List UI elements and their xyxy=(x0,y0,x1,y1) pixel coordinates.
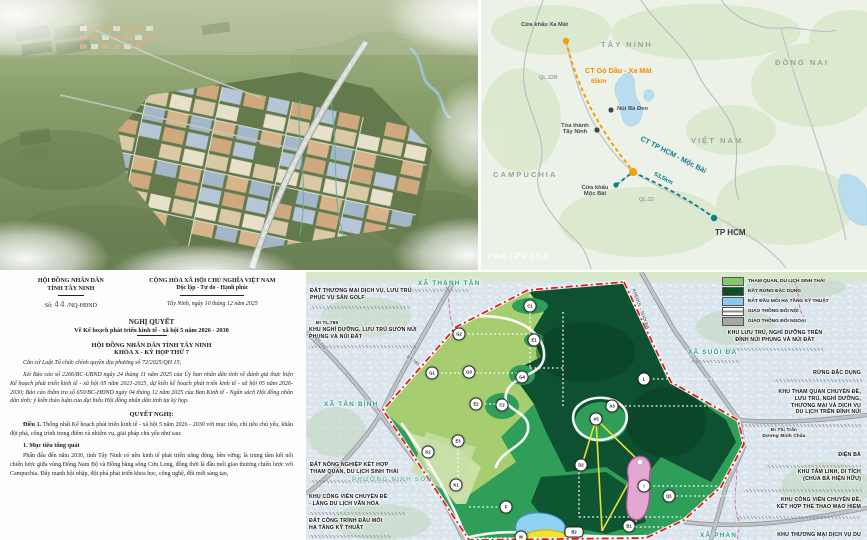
label-di-tl785: ĐI TL.785 xyxy=(316,320,338,326)
legend-item: ĐẤT RỪNG ĐẶC DỤNG xyxy=(722,287,801,296)
label-hatch xyxy=(310,306,410,309)
zone-marker: E1 xyxy=(528,334,541,347)
label-cua-khau-xa-mat: Cửa khẩu Xa Mát xyxy=(521,22,568,28)
cable-station-dot xyxy=(637,459,643,465)
label-phuong-ninh-son: PHƯỜNG NINH SƠN xyxy=(352,476,433,483)
zone-marker: A5 xyxy=(590,413,603,426)
zone-marker: A3 xyxy=(606,400,619,413)
label-toa-thanh-tay-ninh: Tòa thành Tây Ninh xyxy=(555,123,595,135)
document-title: NGHỊ QUYẾT xyxy=(10,318,293,326)
zone-marker: Q1 xyxy=(663,490,676,503)
session-line: KHÓA X - KỲ HỌP THỨ 7 xyxy=(10,349,293,356)
label-khu-luu-tru-dinh-nui: KHU LƯU TRÚ, NGHỈ DƯỠNG TRÊN ĐỈNH NÚI PH… xyxy=(724,330,826,344)
legend-item: ĐẤT ĐẦU MỐI HẠ TẦNG KỸ THUẬT xyxy=(722,297,829,306)
report-paragraph: Xét Báo cáo số 2266/BC-UBND ngày 24 thán… xyxy=(10,371,293,406)
label-hatch xyxy=(774,379,862,382)
document-panel: HỘI ĐỒNG NHÂN DÂN TỈNH TÂY NINH Số: 44 /… xyxy=(0,272,303,540)
label-hatch xyxy=(309,512,406,515)
resolve-heading: QUYẾT NGHỊ: xyxy=(10,411,293,418)
label-nui-ba-den: Núi Bà Đen xyxy=(617,106,648,112)
issuing-org-line1: HỘI ĐỒNG NHÂN DÂN xyxy=(10,277,132,285)
section-1-paragraph: Phấn đấu đến năm 2030, tỉnh Tây Ninh có … xyxy=(10,452,293,478)
zone-marker: G2 xyxy=(453,328,466,341)
zoning-map-panel: ĐẤT THƯƠNG MẠI DỊCH VỤ, LƯU TRÚ PHỤC VỤ … xyxy=(306,272,867,540)
zone-marker: I xyxy=(638,480,651,493)
label-dat-thuong-mai-san-golf: ĐẤT THƯƠNG MẠI DỊCH VỤ, LƯU TRÚ PHỤC VỤ … xyxy=(310,288,412,302)
legend-item: GIAO THÔNG ĐỐI NỘI xyxy=(722,307,799,316)
zone-marker: B1 xyxy=(623,520,636,533)
aerial-render xyxy=(0,0,478,270)
title-underline xyxy=(137,335,167,336)
dot-toa-thanh xyxy=(594,127,599,132)
label-di-thi-tran-duong-minh-chau: Đi Thị Trấn Dương Minh Châu xyxy=(754,427,814,439)
label-tp-hcm: TP HCM xyxy=(715,228,746,237)
document-number: Số: 44 /NQ-HĐND xyxy=(10,300,132,309)
legend-swatch xyxy=(722,307,744,316)
legend-label: ĐẤT ĐẦU MỐI HẠ TẦNG KỸ THUẬT xyxy=(748,299,829,304)
zone-marker: D2 xyxy=(575,459,588,472)
label-campuchia: CAMPUCHIA xyxy=(493,170,557,179)
legend-item: GIAO THÔNG ĐỐI NGOẠI xyxy=(722,317,806,326)
zone-marker: L xyxy=(638,373,651,386)
zone-marker: G4 xyxy=(516,371,529,384)
zone-marker: C1 xyxy=(524,300,537,313)
zone-marker: G3 xyxy=(463,366,476,379)
number-suffix: /NQ-HĐND xyxy=(67,303,97,309)
label-dien-ba: ĐIỆN BÀ xyxy=(821,452,861,459)
zone-marker: M xyxy=(515,531,528,540)
legal-basis: Căn cứ Luật Tổ chức chính quyền địa phươ… xyxy=(10,359,293,368)
legend-item: THAM QUAN, DU LỊCH SINH THÁI xyxy=(722,277,825,286)
label-ct-go-dau-xa-mat: CT Gò Dầu - Xa Mát xyxy=(585,66,652,75)
route-map-panel: Cửa khẩu Xa MátTÂY NINHĐỒNG NAICT Gò Dầu… xyxy=(481,0,867,270)
label-khu-nghi-duong-suon-nui: KHU NGHỈ DƯỠNG, LƯU TRÚ SƯỜN NÚI PHỤNG V… xyxy=(309,327,417,341)
label-ql22b: QL.22B xyxy=(539,75,558,81)
label-viet-nam: VIỆT NAM xyxy=(691,136,743,145)
label-khu-tham-quan-chuyen-de: KHU THAM QUAN CHUYÊN ĐỀ, LƯU TRÚ, NGHỈ D… xyxy=(736,389,861,416)
news-image-collage: Cửa khẩu Xa MátTÂY NINHĐỒNG NAICT Gò Dầu… xyxy=(0,0,867,540)
zone-marker: F xyxy=(500,501,513,514)
article-1: Điều 1. Thống nhất Kế hoạch phát triển k… xyxy=(10,421,293,438)
legend-swatch xyxy=(722,297,744,306)
number-value: 44 xyxy=(54,300,66,309)
zone-marker: C2 xyxy=(496,399,509,412)
zone-marker: B2 xyxy=(565,527,584,538)
label-tay-ninh: TÂY NINH xyxy=(601,40,653,49)
label-ql22: QL.22 xyxy=(639,197,654,203)
org-underline xyxy=(58,295,84,296)
label-hatch xyxy=(744,489,862,492)
article-1-lead: Điều 1. xyxy=(23,422,41,428)
legend-label: GIAO THÔNG ĐỐI NỘI xyxy=(748,309,799,314)
label-khu-thuong-mai-dich-vu: KHU THƯƠNG MẠI DỊCH VỤ DU xyxy=(736,532,861,539)
zone-marker: G1 xyxy=(426,367,439,380)
national-motto-line2: Độc lập - Tự do - Hạnh phúc xyxy=(132,285,293,293)
article-1-text: Thống nhất Kế hoạch phát triển kinh tế -… xyxy=(10,422,293,437)
zone-marker: K2 xyxy=(422,446,435,459)
section-1-heading: 1. Mục tiêu tổng quát xyxy=(10,442,293,449)
dot-junction xyxy=(629,168,637,176)
aerial-render-panel xyxy=(0,0,478,270)
label-hatch xyxy=(734,516,861,519)
label-hatch xyxy=(724,348,824,351)
label-xa-suoi-da: XÃ SUỐI ĐÁ xyxy=(688,349,737,356)
legend-swatch xyxy=(722,277,744,286)
label-dong-nai: ĐỒNG NAI xyxy=(775,58,829,67)
legend-label: ĐẤT RỪNG ĐẶC DỤNG xyxy=(748,289,801,294)
zone-marker: E3 xyxy=(452,435,465,448)
document-subtitle: Về Kế hoạch phát triển kinh tế - xã hội … xyxy=(10,327,293,334)
zone-marker: K1 xyxy=(450,479,463,492)
label-hatch xyxy=(766,465,861,468)
legend-label: GIAO THÔNG ĐỐI NGOẠI xyxy=(748,319,806,324)
label-dat-nong-nghiep: ĐẤT NÔNG NGHIỆP KẾT HỢP THAM QUAN, DU LỊ… xyxy=(310,462,399,476)
legend-swatch xyxy=(722,317,744,326)
label-dat-cong-trinh-dau-moi: ĐẤT CÔNG TRÌNH ĐẦU MỐI HẠ TẦNG KỸ THUẬT xyxy=(309,518,382,532)
dot-xa-mat xyxy=(563,38,569,44)
national-motto-line1: CỘNG HÒA XÃ HỘI CHỦ NGHĨA VIỆT NAM xyxy=(132,277,293,285)
issuing-org-line2: TỈNH TÂY NINH xyxy=(10,285,132,293)
label-hatch xyxy=(690,360,740,363)
dot-nui-ba-den xyxy=(608,107,613,112)
label-cong-vien-lang-du-lich: KHU CÔNG VIÊN CHUYÊN ĐỀ - LÀNG DU LỊCH V… xyxy=(309,494,387,508)
vnexpress-watermark: VNEXPRESS xyxy=(487,252,549,261)
dot-tp-hcm xyxy=(711,215,717,221)
label-65km: 65km xyxy=(591,79,606,85)
label-khu-tam-linh: KHU TÂM LINH, DI TÍCH (CHÙA BÀ HIỆN HỮU) xyxy=(746,469,861,483)
motto-underline xyxy=(180,295,244,296)
label-xa-thanh-tan: XÃ THẠNH TÂN xyxy=(418,280,480,287)
number-prefix: Số: xyxy=(45,303,53,309)
legend-swatch xyxy=(722,287,744,296)
route-map-base xyxy=(481,0,867,270)
label-cong-vien-the-thao-mao-hiem: KHU CÔNG VIÊN CHUYÊN ĐỀ, KẾT HỢP THỂ THA… xyxy=(736,497,861,511)
label-hatch xyxy=(309,535,391,538)
legend-label: THAM QUAN, DU LỊCH SINH THÁI xyxy=(748,279,825,284)
label-xa-tan-binh: XÃ TÂN BÌNH xyxy=(324,401,378,408)
label-rung-dac-dung: RỪNG ĐẶC DỤNG xyxy=(761,370,861,377)
label-cua-khau-moc-bai: Cửa khẩu Mộc Bài xyxy=(575,185,615,197)
dateline: Tây Ninh, ngày 10 tháng 12 năm 2025 xyxy=(132,301,293,307)
label-xa-phan: XÃ PHAN xyxy=(700,532,737,539)
zone-marker: E2 xyxy=(470,398,483,411)
